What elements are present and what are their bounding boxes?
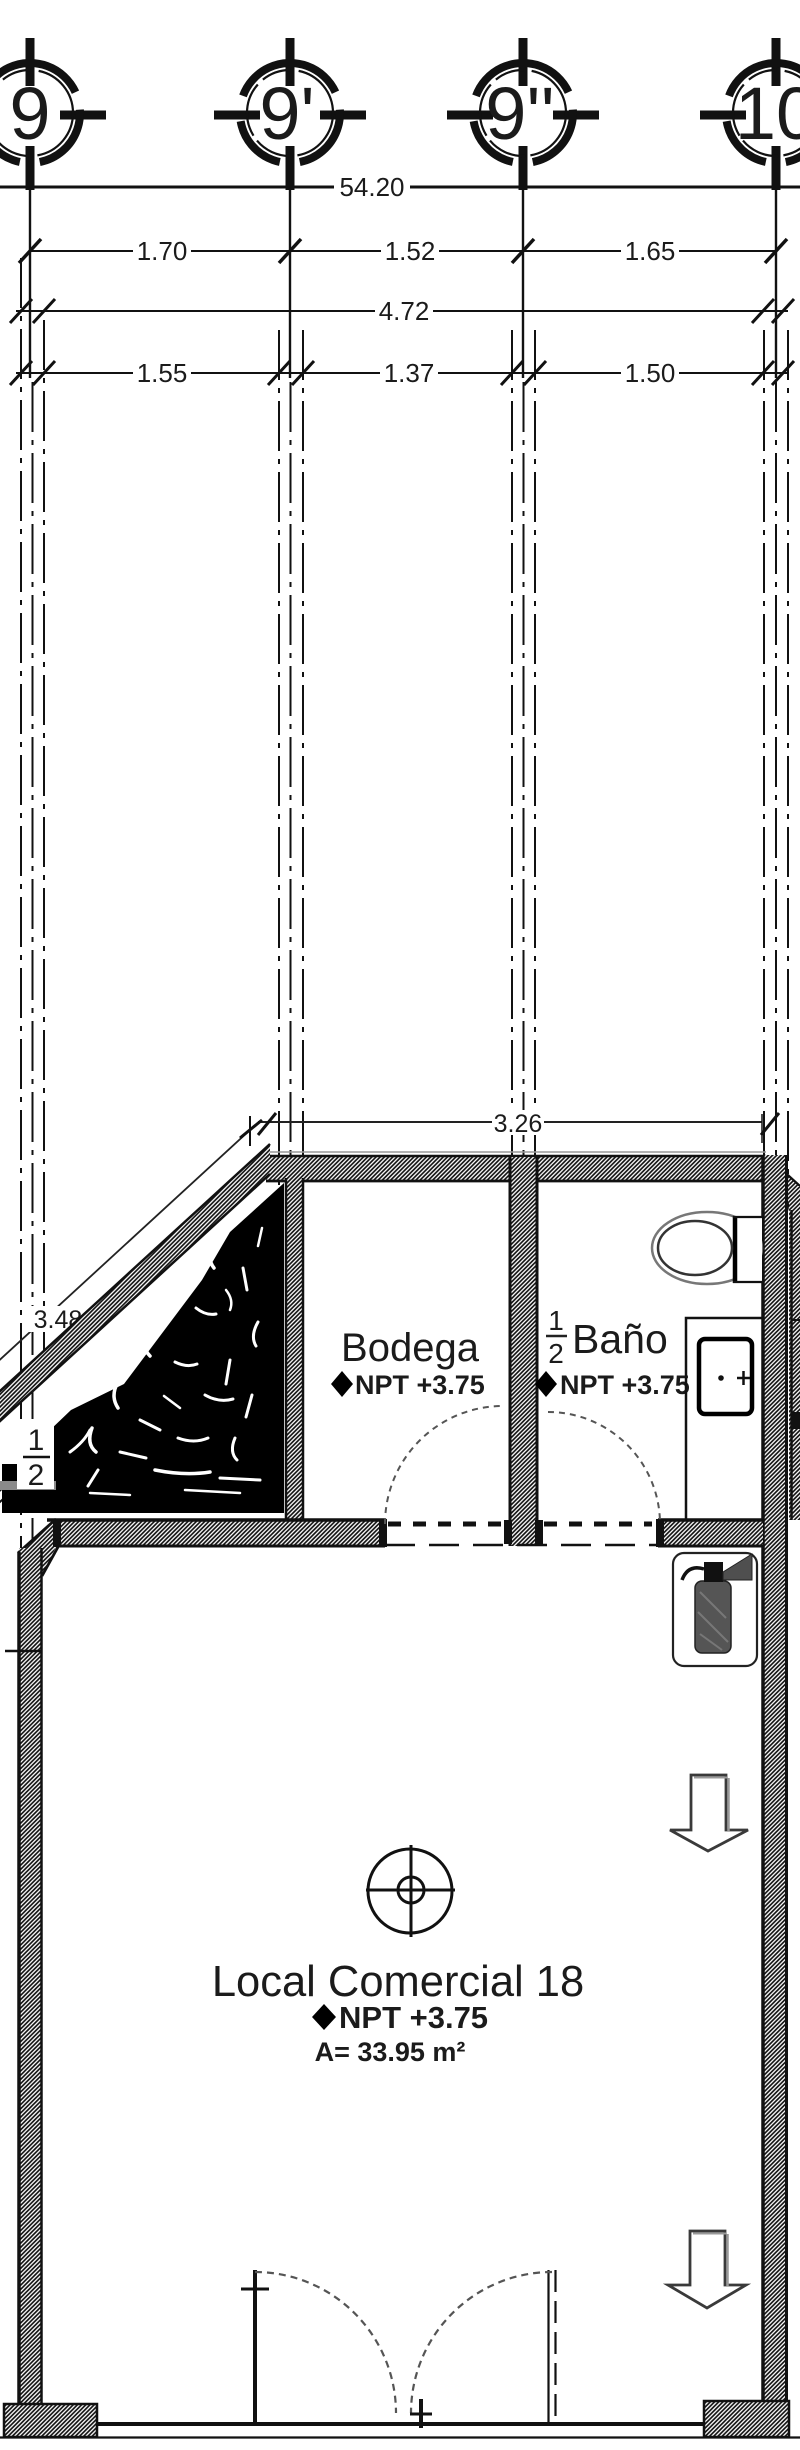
svg-text:Local Comercial 18: Local Comercial 18 — [212, 1958, 584, 2006]
svg-text:Bodega: Bodega — [341, 1326, 480, 1370]
svg-text:2: 2 — [548, 1338, 564, 1369]
svg-text:4.72: 4.72 — [379, 296, 430, 326]
svg-text:NPT +3.75: NPT +3.75 — [355, 1370, 485, 1400]
svg-text:A= 33.95 m²: A= 33.95 m² — [315, 2037, 466, 2067]
svg-text:2: 2 — [28, 1459, 45, 1492]
svg-text:1.65: 1.65 — [625, 236, 676, 266]
svg-text:9': 9' — [259, 72, 314, 155]
svg-text:1: 1 — [548, 1305, 564, 1336]
svg-text:1.50: 1.50 — [625, 358, 676, 388]
svg-text:10: 10 — [735, 72, 800, 155]
svg-text:NPT +3.75: NPT +3.75 — [339, 2000, 488, 2035]
svg-text:9'': 9'' — [485, 72, 554, 155]
svg-text:9: 9 — [9, 72, 50, 155]
svg-text:1.52: 1.52 — [385, 236, 436, 266]
svg-text:1.55: 1.55 — [137, 358, 188, 388]
svg-text:1.37: 1.37 — [384, 358, 435, 388]
svg-text:NPT +3.75: NPT +3.75 — [560, 1370, 690, 1400]
svg-text:Baño: Baño — [572, 1316, 668, 1362]
svg-text:54.20: 54.20 — [339, 172, 404, 202]
svg-text:1.70: 1.70 — [137, 236, 188, 266]
svg-text:3.26: 3.26 — [494, 1110, 543, 1138]
svg-text:1: 1 — [28, 1424, 45, 1457]
